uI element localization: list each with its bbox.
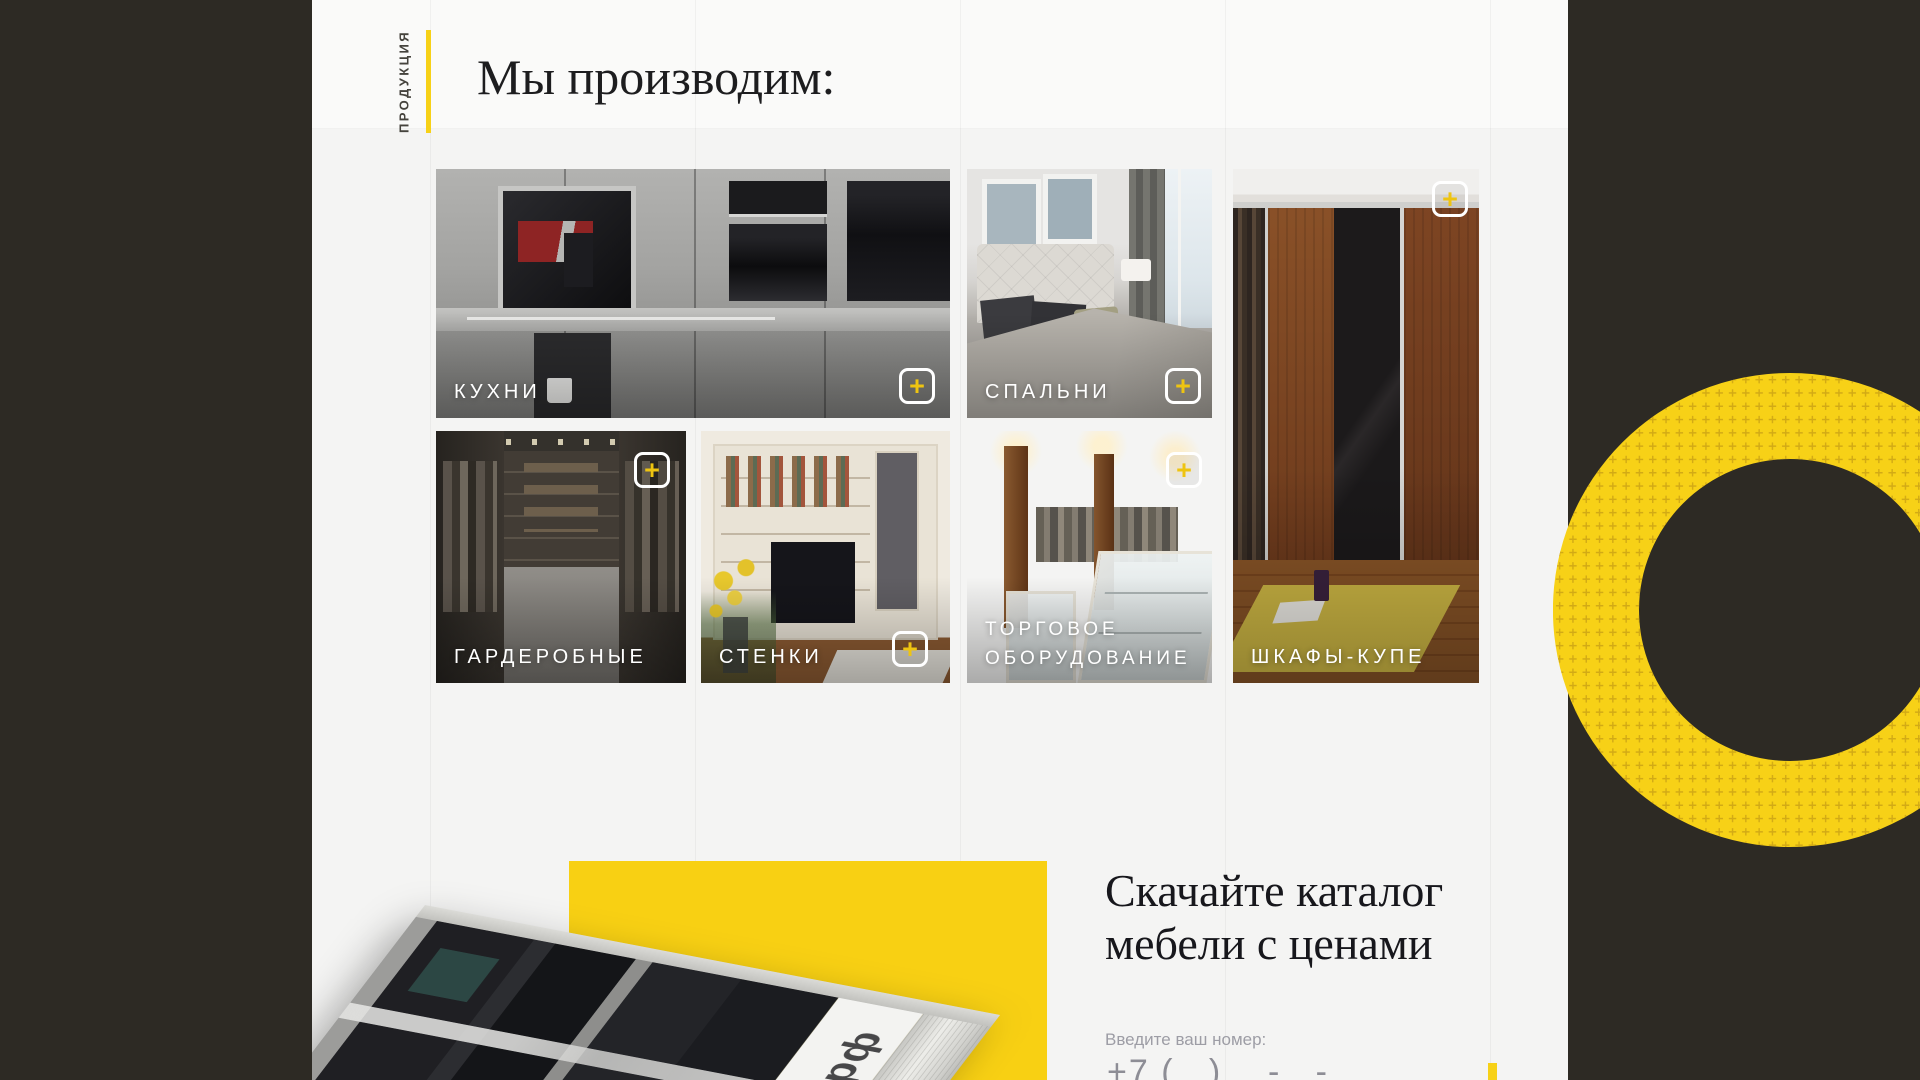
catalog-heading: Скачайте каталог мебели с ценами bbox=[1105, 864, 1443, 970]
kitchen-coffee-machine bbox=[534, 333, 611, 418]
bedroom-pillow bbox=[1029, 302, 1085, 343]
product-card-wall-units[interactable]: СТЕНКИ + bbox=[701, 431, 950, 683]
catalog-heading-line1: Скачайте каталог bbox=[1105, 864, 1443, 917]
kitchen-oven bbox=[847, 181, 950, 301]
product-card-kitchens[interactable]: КУХНИ + bbox=[436, 169, 950, 418]
wardrobe-cup bbox=[1314, 570, 1329, 601]
kitchen-tv bbox=[498, 186, 637, 318]
catalog-heading-line2: мебели с ценами bbox=[1105, 917, 1443, 970]
bedroom-curtain bbox=[1129, 169, 1166, 333]
page: { "sidebar": { "section_label": "ПРОДУКЦ… bbox=[0, 0, 1920, 1080]
kitchen-drawer bbox=[436, 308, 950, 330]
wardrobe-door bbox=[1334, 202, 1400, 559]
plus-icon[interactable]: + bbox=[899, 368, 935, 404]
product-label: СПАЛЬНИ bbox=[985, 381, 1111, 404]
plus-icon[interactable]: + bbox=[1432, 181, 1468, 217]
wall-unit-table bbox=[823, 650, 950, 683]
wardrobe-clothes-rack bbox=[1233, 202, 1265, 559]
product-card-bedrooms[interactable]: СПАЛЬНИ + bbox=[967, 169, 1212, 418]
wall-unit-books bbox=[726, 456, 851, 506]
layout-grid-line bbox=[1490, 0, 1491, 1080]
plus-icon[interactable]: + bbox=[634, 452, 670, 488]
kitchen-cup bbox=[547, 378, 573, 403]
shop-pillar bbox=[1094, 454, 1114, 610]
product-label: ГАРДЕРОБНЫЕ bbox=[454, 646, 647, 669]
phone-input[interactable] bbox=[1105, 1048, 1539, 1080]
section-label-vertical: ПРОДУКЦИЯ bbox=[388, 30, 420, 133]
bedroom-pillow bbox=[980, 296, 1038, 341]
bedroom-picture bbox=[1043, 174, 1097, 244]
product-card-trade-equipment[interactable]: ТОРГОВОЕ ОБОРУДОВАНИЕ + bbox=[967, 431, 1212, 683]
decorative-ring bbox=[1553, 373, 1920, 847]
yellow-accent-bar bbox=[1488, 1063, 1497, 1080]
section-accent-line bbox=[426, 30, 431, 133]
wardrobe-papers bbox=[1273, 599, 1326, 623]
phone-label: Введите ваш номер: bbox=[1105, 1030, 1266, 1050]
content-area: ПРОДУКЦИЯ Мы производим: КУХНИ + СПАЛЬНИ… bbox=[312, 0, 1568, 1080]
wall-unit-glass-door bbox=[875, 451, 919, 611]
plus-icon[interactable]: + bbox=[1165, 368, 1201, 404]
product-label: СТЕНКИ bbox=[719, 646, 823, 669]
page-title: Мы производим: bbox=[477, 48, 835, 106]
product-label: ТОРГОВОЕ ОБОРУДОВАНИЕ bbox=[985, 616, 1212, 673]
kitchen-oven bbox=[729, 181, 827, 216]
wall-unit-tv bbox=[771, 542, 856, 623]
product-card-sliding-wardrobes[interactable]: ШКАФЫ-КУПЕ + bbox=[1233, 169, 1479, 683]
shop-pillar bbox=[1004, 446, 1029, 627]
product-label: КУХНИ bbox=[454, 381, 541, 404]
product-label: ШКАФЫ-КУПЕ bbox=[1251, 646, 1426, 669]
closet-lights bbox=[506, 439, 616, 445]
plus-icon[interactable]: + bbox=[1166, 452, 1202, 488]
kitchen-oven bbox=[729, 224, 827, 301]
bedroom-picture bbox=[982, 179, 1041, 254]
wardrobe-door bbox=[1400, 202, 1479, 559]
plus-icon[interactable]: + bbox=[892, 631, 928, 667]
product-card-dressing-rooms[interactable]: ГАРДЕРОБНЫЕ + bbox=[436, 431, 686, 683]
wardrobe-door bbox=[1265, 202, 1341, 559]
bedroom-lamp bbox=[1121, 259, 1150, 281]
closet-back-shelving bbox=[504, 451, 619, 567]
